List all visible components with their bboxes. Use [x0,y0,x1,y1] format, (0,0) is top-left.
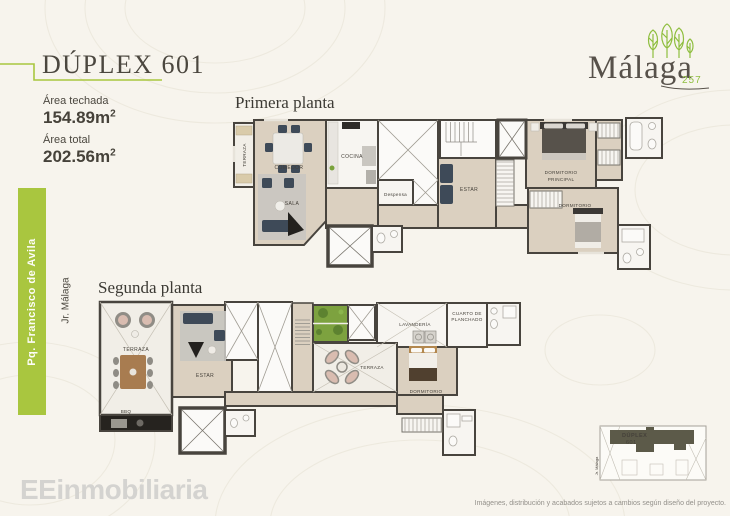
area-techada-value: 154.89m2 [43,108,116,128]
key-plan: DÚPLEX 601 Jr. Málaga [590,418,720,488]
floor2-corridor [225,392,397,406]
floor1-label-sala: SALA [285,201,300,207]
floor2-title: Segunda planta [98,278,202,298]
floor1-bed-dorm2 [573,208,603,248]
floor2-bed [409,346,437,381]
floor1-label-estar: ESTAR [460,187,478,193]
park-band: Pq. Francisco de Avila [18,188,46,415]
floor1-plan: TERRAZA COMEDOR SALA COCINA Despensa EST… [228,112,668,272]
floor2-label-cuarto1: CUARTO DE [452,311,482,316]
area-total-label: Área total [43,134,90,146]
brand-logo: Málaga 257 [585,22,725,92]
floor2-label-terraza: TERRAZA [123,347,149,353]
floor2-bbq-counter [100,415,172,431]
floor1-label-despensa: Despensa [384,192,407,197]
park-label: Pq. Francisco de Avila [26,238,38,366]
area-techada-label: Área techada [43,95,108,107]
floor2-label-bbq: BBQ [121,409,132,414]
floor1-label-terraza: TERRAZA [242,143,247,167]
floor1-entry-hall [326,188,378,228]
floor2-room-cuarto-planchado [447,303,487,347]
floor1-label-dormp1: DORMITORIO [545,170,578,175]
floor2-estar-furniture [180,311,226,361]
key-plan-unit-line1: DÚPLEX [622,432,647,439]
floor1-label-cocina: COCINA [341,154,363,160]
floor2-label-lavanderia: LAVANDERÍA [399,321,431,327]
disclaimer-text: Imágenes, distribución y acabados sujeto… [0,500,726,507]
floor2-dorm-lower [397,395,443,414]
key-plan-unit-line2: 601 [626,440,637,446]
brand-number: 257 [682,75,702,86]
floor1-bath-small [372,226,402,252]
key-plan-street: Jr. Málaga [594,456,599,475]
area-total-value: 202.56m2 [43,147,116,167]
floor1-stairs [440,120,496,158]
floor1-sala-furniture [258,174,306,240]
floor2-stair-strip [292,303,313,395]
brand-name: Málaga [588,50,693,87]
floor2-bath-small [225,410,255,436]
floor2-label-cuarto2: PLANCHADO [451,317,482,322]
floor1-label-dormp2: PRINCIPAL [548,177,575,182]
floor1-label-dorm2: DORMITORIO [559,203,592,208]
floor2-label-estar: ESTAR [196,373,214,379]
floor2-plan: TERRAZA BBQ ESTAR LAVANDERÍA CUARTO DE P… [95,298,525,458]
page-title: DÚPLEX 601 [42,50,205,80]
floor2-label-terraza2: TERRAZA [360,365,384,370]
floor1-title: Primera planta [235,93,335,113]
floor1-label-comedor: COMEDOR [275,165,304,171]
street-label: Jr. Málaga [48,268,84,332]
floor2-label-dormitorio: DORMITORIO [410,389,443,394]
